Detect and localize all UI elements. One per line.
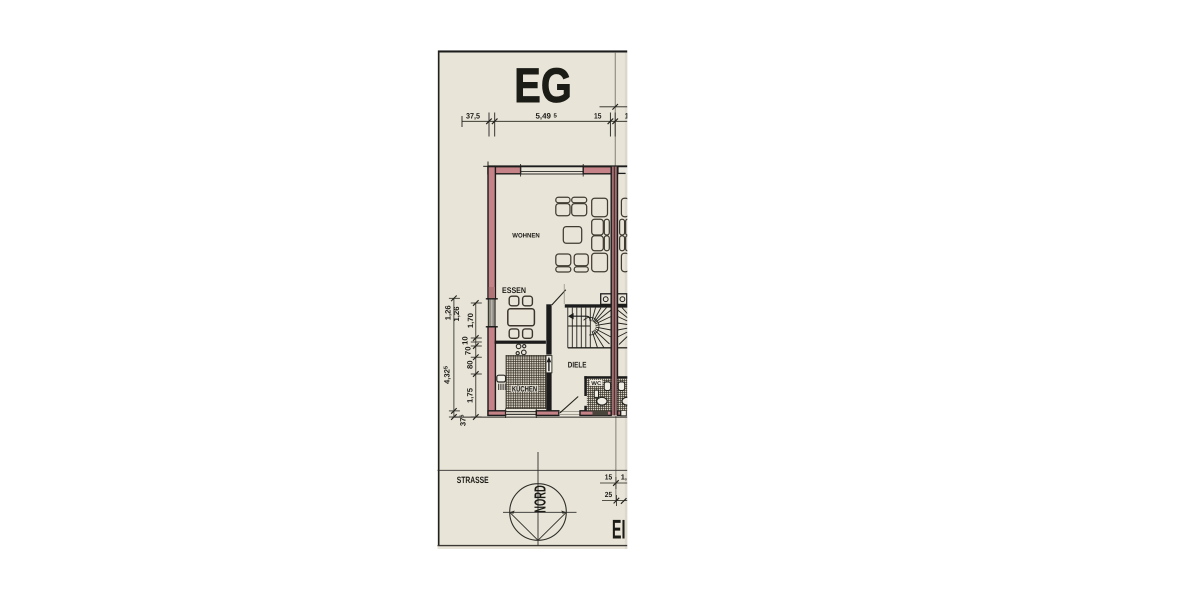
svg-text:EI: EI [612, 514, 626, 544]
svg-text:15: 15 [594, 112, 602, 121]
svg-text:WC: WC [591, 381, 601, 387]
svg-text:1,75: 1,75 [466, 387, 475, 403]
svg-text:DIELE: DIELE [568, 361, 587, 370]
svg-text:10: 10 [460, 336, 469, 345]
svg-text:80: 80 [465, 360, 474, 369]
svg-text:KÜCHEN: KÜCHEN [512, 384, 537, 393]
svg-text:1,: 1, [621, 473, 627, 482]
svg-text:WOHNEN: WOHNEN [512, 232, 540, 239]
svg-text:1,70: 1,70 [466, 313, 475, 328]
svg-text:70: 70 [464, 347, 473, 356]
svg-text:15: 15 [605, 473, 612, 482]
svg-text:EG: EG [514, 59, 572, 113]
svg-text:NORD: NORD [533, 485, 550, 513]
svg-text:1,26: 1,26 [443, 305, 452, 320]
svg-text:1,26: 1,26 [452, 307, 461, 322]
svg-text:ESSEN: ESSEN [502, 286, 526, 295]
svg-text:37,5: 37,5 [466, 112, 481, 121]
svg-text:25: 25 [605, 490, 612, 499]
svg-text:5,49: 5,49 [536, 112, 552, 121]
svg-text:STRASSE: STRASSE [457, 475, 489, 485]
